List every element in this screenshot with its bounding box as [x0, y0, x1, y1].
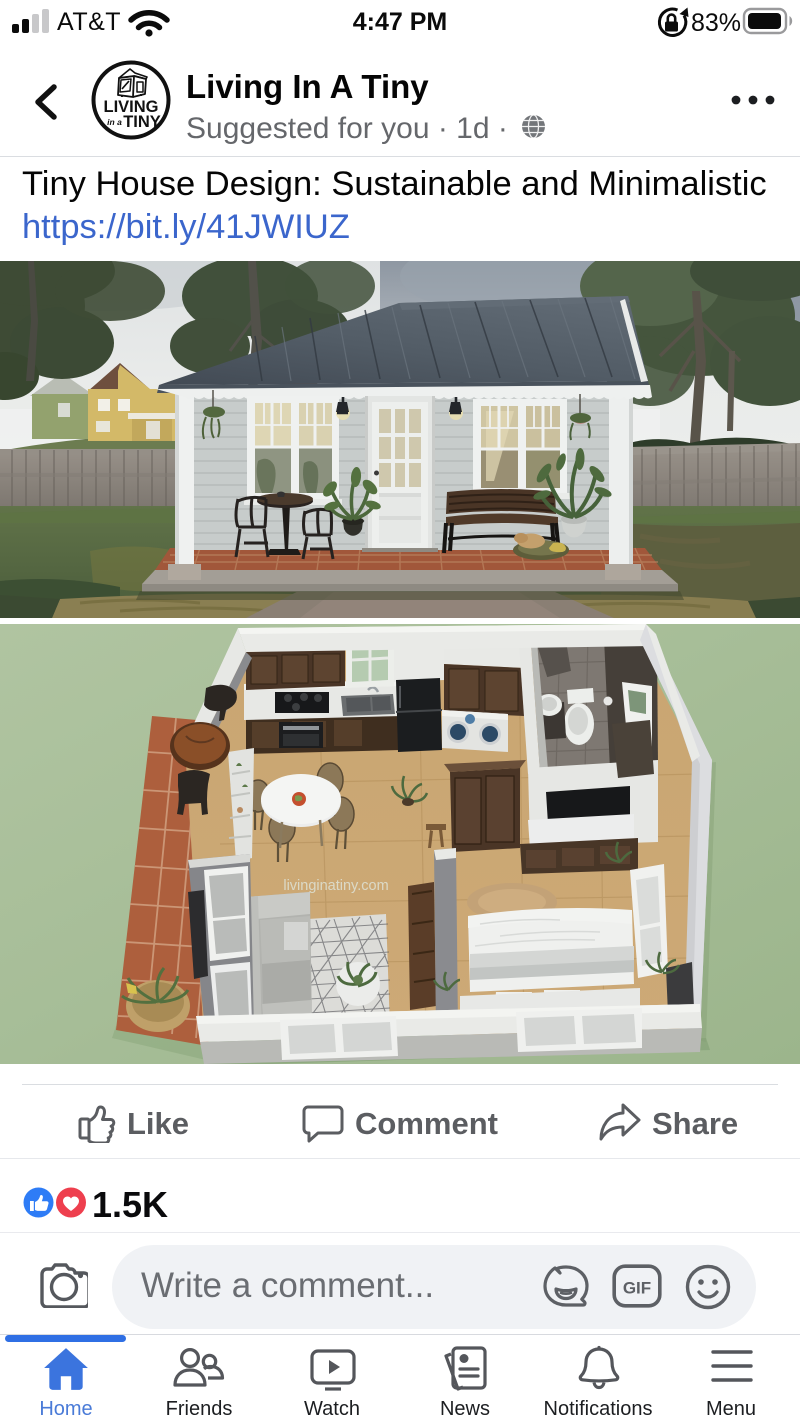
svg-text:TINY: TINY	[123, 113, 161, 131]
svg-text:livinginatiny.com: livinginatiny.com	[283, 878, 388, 894]
svg-text:in a: in a	[107, 117, 122, 127]
svg-text:GIF: GIF	[623, 1279, 651, 1298]
